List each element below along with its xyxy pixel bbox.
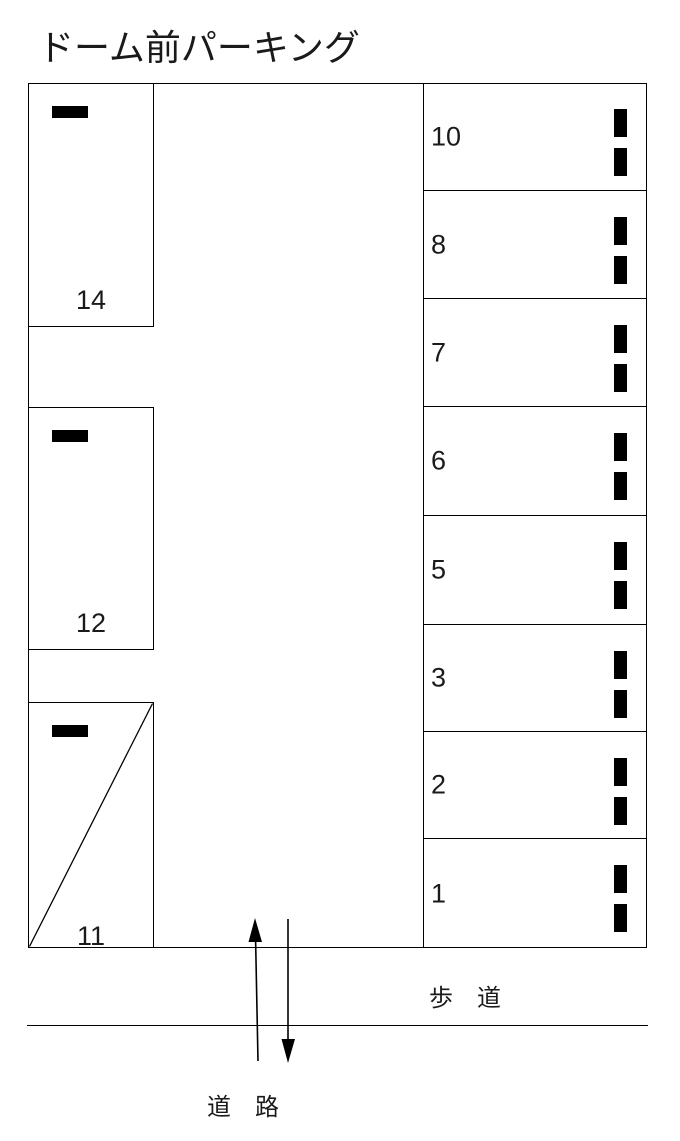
wheel-stop-icon (614, 542, 627, 570)
space-number: 3 (431, 665, 446, 692)
wheel-stop-icon (52, 106, 88, 118)
space-number: 1 (431, 880, 446, 907)
space-number: 10 (431, 123, 461, 150)
parking-space-2: 2 (424, 732, 647, 839)
parking-space-3: 3 (424, 625, 647, 732)
up-arrow-icon (249, 918, 263, 1061)
wheel-stop-icon (614, 865, 627, 893)
wheel-stop-icon (614, 256, 627, 284)
parking-space-11: 11 (28, 702, 154, 948)
right-space-column: 10 8 7 6 5 3 2 (423, 83, 647, 948)
wheel-stop-icon (52, 430, 88, 442)
wheel-stop-icon (614, 433, 627, 461)
road-label: 道 路 (207, 1094, 279, 1122)
wheel-stop-icon (614, 651, 627, 679)
page-title: ドーム前パーキング (38, 27, 360, 68)
parking-map: ドーム前パーキング 14 12 11 10 8 7 (0, 0, 680, 1141)
wheel-stop-icon (614, 148, 627, 176)
parking-space-10: 10 (424, 83, 647, 191)
wheel-stop-icon (614, 904, 627, 932)
parking-space-6: 6 (424, 407, 647, 516)
wheel-stop-icon (614, 364, 627, 392)
wheel-stop-icon (614, 581, 627, 609)
down-arrow-icon (282, 919, 296, 1063)
space-number: 7 (431, 339, 446, 366)
space-number: 6 (431, 448, 446, 475)
sidewalk-label: 歩 道 (429, 985, 501, 1013)
diagonal-slash-icon (29, 703, 153, 947)
sidewalk-road-divider-line (27, 1025, 648, 1026)
parking-space-12: 12 (28, 407, 154, 650)
wheel-stop-icon (614, 797, 627, 825)
space-number: 14 (29, 287, 153, 314)
wheel-stop-icon (614, 217, 627, 245)
traffic-direction-arrows (235, 905, 305, 1075)
parking-space-7: 7 (424, 299, 647, 407)
wheel-stop-icon (614, 472, 627, 500)
wheel-stop-icon (614, 325, 627, 353)
parking-space-1: 1 (424, 839, 647, 948)
wheel-stop-icon (614, 758, 627, 786)
wheel-stop-icon (614, 690, 627, 718)
space-number: 5 (431, 557, 446, 584)
space-number: 2 (431, 772, 446, 799)
wheel-stop-icon (52, 725, 88, 737)
wheel-stop-icon (614, 109, 627, 137)
parking-space-8: 8 (424, 191, 647, 299)
parking-space-14: 14 (28, 83, 154, 327)
space-number: 11 (29, 923, 153, 950)
parking-space-5: 5 (424, 516, 647, 625)
space-number: 12 (29, 610, 153, 637)
space-number: 8 (431, 231, 446, 258)
